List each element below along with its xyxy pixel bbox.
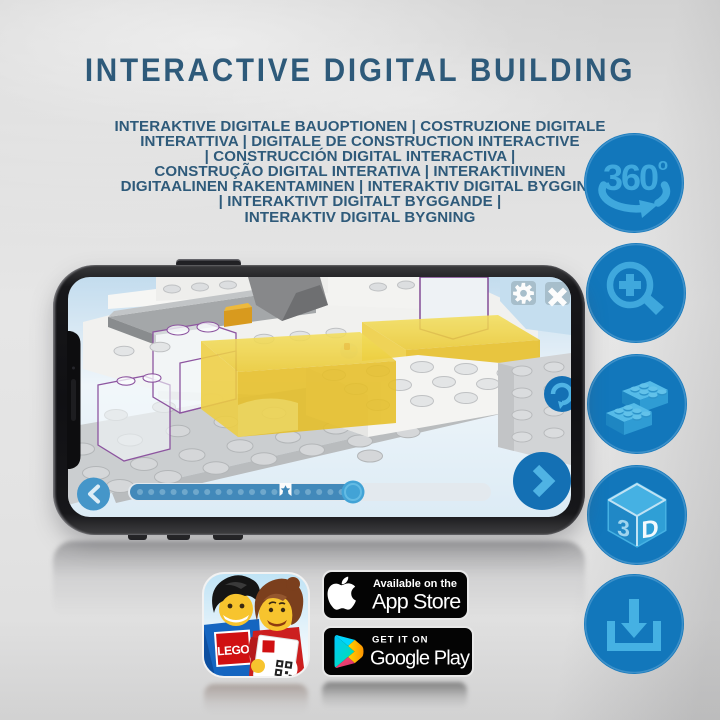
svg-text:GET IT ON: GET IT ON bbox=[372, 635, 429, 646]
svg-text:Available on the: Available on the bbox=[373, 578, 457, 590]
svg-text:D: D bbox=[641, 515, 658, 545]
svg-text:3: 3 bbox=[617, 514, 630, 542]
svg-text:LEGO: LEGO bbox=[217, 642, 250, 658]
svg-text:App Store: App Store bbox=[372, 590, 460, 614]
svg-text:Google Play: Google Play bbox=[370, 648, 470, 670]
svg-text:360: 360 bbox=[603, 157, 658, 198]
svg-text:o: o bbox=[658, 155, 668, 174]
